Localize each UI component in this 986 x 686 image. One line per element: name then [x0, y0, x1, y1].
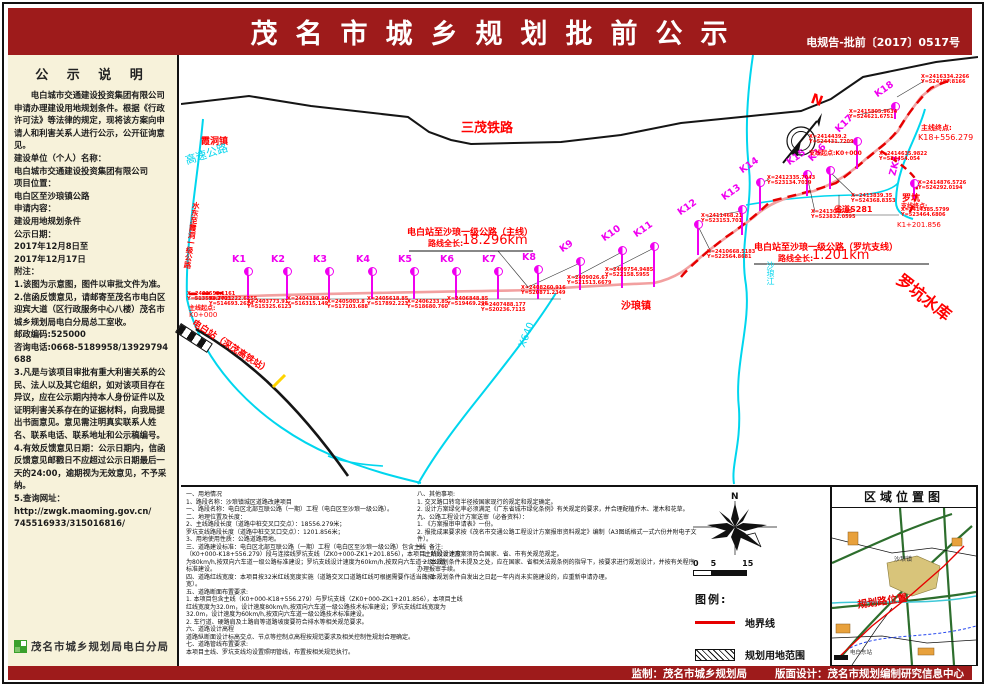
legend-item: 地界线	[695, 615, 775, 630]
agency-logo-icon	[14, 640, 27, 653]
coordinate-line: Y=524787.8166	[921, 80, 969, 85]
sidebar-paragraph: 2.信函反馈意见，请邮寄至茂名市电白区迎宾大道（区行政服务中心八楼）茂名市城乡规…	[14, 291, 172, 329]
agency-name: 茂名市城乡规划局电白分局	[31, 639, 169, 654]
sidebar-paragraph: 建设单位（个人）名称：	[14, 152, 172, 165]
km-marker-label: K7	[482, 254, 496, 265]
km-marker-label: K6	[440, 254, 454, 265]
km-marker-stem	[497, 275, 498, 299]
map-label: 水东至霞洞一级公路	[182, 201, 202, 269]
km-marker-dot	[368, 267, 377, 276]
coordinate-label: X=2416334.2266Y=524787.8166	[921, 75, 969, 86]
region-station-label: 电白东站	[850, 648, 873, 656]
map-label: 沙琅镇	[621, 297, 651, 312]
coordinate-label: X=2403773.91Y=515325.6123	[247, 300, 292, 311]
map-label: 省道S281	[834, 204, 872, 215]
page-title: 茂名市城乡规划批前公示	[235, 12, 746, 51]
map-label: K1+201.856	[897, 221, 941, 229]
sidebar-paragraph: 4.有效反馈意见日期：公示日期内，信函反馈意见邮戳日不应超过公示日期最后一天的2…	[14, 442, 172, 492]
km-marker-stem	[653, 250, 654, 287]
coordinate-label: X=2406233.85Y=518680.760	[407, 300, 448, 311]
sidebar-paragraph: 2017年12月8日至	[14, 240, 172, 253]
map-label: 1.201km	[812, 248, 869, 263]
map-label: N	[809, 91, 825, 110]
legend-panel: N 0515 图例: 地界线规划用地范围	[681, 487, 829, 664]
coordinate-line: Y=517103.688	[327, 305, 368, 310]
km-marker-dot	[576, 257, 585, 266]
map-label: K0+000	[189, 311, 217, 319]
sidebar-paragraph: 电白城市交通建设投资集团有限公司申请办理建设用地规划条件。根据《行政许可法》等法…	[14, 89, 172, 152]
note-line: 宽）。	[186, 581, 416, 589]
km-marker-dot	[756, 178, 765, 187]
km-marker-stem	[413, 275, 414, 299]
map-label: 18.296km	[462, 233, 528, 248]
map-label: 三茂铁路	[461, 117, 513, 136]
map-label: K18+556.279	[918, 133, 973, 142]
coordinate-line: Y=518680.760	[407, 305, 448, 310]
legend-label: 地界线	[745, 615, 775, 630]
header-banner: 茂名市城乡规划批前公示 电规告-批前〔2017〕0517号	[8, 8, 972, 55]
legend-item: 规划用地范围	[695, 647, 805, 662]
km-marker-label: K1	[232, 254, 246, 265]
km-marker-dot	[452, 267, 461, 276]
note-line: 32.0m，设计速度为60km/h,按双向六车道一级公路技术标准建设。	[186, 611, 416, 619]
coordinate-line: Y=523153.701	[701, 219, 742, 224]
wind-rose-icon: N	[689, 489, 781, 557]
sidebar-paragraph: 2017年12月17日	[14, 253, 172, 266]
sidebar-paragraph: 公示日期：	[14, 228, 172, 241]
map-label: 罗坑水库	[892, 267, 957, 325]
note-line: 2、主线路段长度（道路中桩交叉口交点）：18556.279米；	[186, 521, 416, 529]
sidebar-paragraph: 3.凡是与该项目审批有重大利害关系的公民、法人以及其它组织，如对该项目存在异议，…	[14, 366, 172, 442]
coordinate-line: Y=523464.6806	[901, 213, 949, 218]
map-label: 支线起点:K0+000	[809, 148, 862, 157]
note-line: 为80km/h,按双向六车道一级公路标准建设；罗坑支线设计速度为60km/h,按…	[186, 559, 416, 567]
coordinate-label: X=2411468.21Y=523153.701	[701, 214, 742, 225]
footer-banner: 监制：茂名市城乡规划局 版面设计：茂名市规划编制研究信息中心	[8, 666, 972, 680]
note-line: 四、道路红线宽度：本项目按32米红线宽度实施（道路交叉口道路红线可根据需要作适当…	[186, 574, 416, 582]
km-marker-label: K9	[558, 238, 576, 255]
footer-producer: 监制：茂名市城乡规划局	[632, 666, 748, 681]
map-label: 支线终点:	[901, 201, 927, 210]
note-line: 六、道路设计高程	[186, 626, 416, 634]
km-marker-label: K10	[600, 223, 623, 244]
sidebar-paragraph: 1.该图为示意图，图件以审批文件为准。	[14, 278, 172, 291]
km-marker-label: K3	[313, 254, 327, 265]
km-marker-stem	[759, 186, 760, 211]
legend-title: 图例:	[695, 591, 727, 607]
coordinate-line: Y=522564.8681	[707, 255, 755, 260]
map-label: 沙琅江	[765, 261, 776, 285]
coordinate-line: Y=523134.7039	[767, 181, 815, 186]
coordinate-line: Y=523832.0595	[811, 215, 856, 220]
coordinate-label: X=2415805.9634Y=524621.6751	[849, 110, 897, 121]
km-marker-label: K11	[632, 219, 655, 240]
region-town-label: 沙琅镇	[894, 555, 912, 563]
km-marker-dot	[826, 166, 835, 175]
note-line: 标准建设。	[186, 566, 416, 574]
sidebar-paragraph: 电白城市交通建设投资集团有限公司	[14, 165, 172, 178]
km-marker-dot	[494, 267, 503, 276]
km-marker-stem	[697, 228, 698, 255]
coordinate-label: X=2407488.177Y=520236.7115	[481, 303, 526, 314]
coordinate-line: Y=520871.2349	[521, 291, 566, 296]
km-marker-dot	[244, 267, 253, 276]
region-map-panel: 区域位置图	[830, 485, 978, 666]
km-marker-label: K4	[356, 254, 370, 265]
sidebar-paragraph: 申请内容：	[14, 202, 172, 215]
coordinate-line: Y=524621.6751	[849, 115, 897, 120]
km-marker-dot	[650, 242, 659, 251]
note-line: 罗坑支线路段长度（道路中桩交叉口交点）：1201.856米；	[186, 529, 416, 537]
sidebar-footer: 茂名市城乡规划局电白分局	[14, 639, 169, 654]
note-line: 七、道路管线布置要求:	[186, 641, 416, 649]
note-line: 二、地理位置及长度：	[186, 514, 416, 522]
coordinate-line: Y=524454.054	[879, 157, 927, 162]
km-marker-dot	[618, 246, 627, 255]
scale-tick: 0	[693, 559, 699, 568]
svg-text:N: N	[731, 492, 739, 502]
map-label: 路线全长:	[428, 238, 463, 249]
coordinate-label: X=2404388.90Y=516315.149	[287, 297, 328, 308]
km-marker-label: K2	[271, 254, 285, 265]
sidebar-paragraph: 5.查询网址：	[14, 492, 172, 505]
coordinate-label: X=2410668.5183Y=522564.8681	[707, 250, 755, 261]
plan-map: K1K2K3K4K5K6K7K8K9K10K11K12K13K14K15K16K…	[181, 55, 978, 485]
note-line: 1. 本项目包含主线（K0+000-K18+556.279）与罗坑支线（ZK0+…	[186, 596, 416, 604]
map-overlay: K1K2K3K4K5K6K7K8K9K10K11K12K13K14K15K16K…	[181, 55, 978, 485]
planning-area-swatch	[695, 649, 735, 661]
map-label: 路线全长:	[778, 253, 813, 264]
scale-tick: 5	[711, 559, 717, 568]
km-marker-dot	[325, 267, 334, 276]
note-line: 3、用地使用性质：公路道路用地。	[186, 536, 416, 544]
note-line: 2. 车行道、硬路肩及土路肩等道路坡度要符合排水等相关规范要求。	[186, 619, 416, 627]
km-marker-dot	[534, 265, 543, 274]
km-marker-label: K13	[720, 182, 743, 203]
km-marker-label: K12	[676, 197, 699, 218]
map-label: 主线终点:	[921, 123, 952, 133]
coordinate-line: Y=521513.6679	[567, 281, 612, 286]
sidebar-paragraph: 745516933/315016816/	[14, 517, 172, 530]
coordinate-line: Y=517892.223	[367, 302, 408, 307]
scale-tick: 15	[742, 559, 753, 568]
sidebar-paragraph: http://zwgk.maoming.gov.cn/	[14, 505, 172, 518]
coordinate-line: Y=516315.149	[287, 302, 328, 307]
sidebar-paragraph: 电白区至沙琅镇公路	[14, 190, 172, 203]
note-line: 红线宽度为32.0m，设计速度80km/h,按双向六车道一级公路技术标准建设；罗…	[186, 604, 416, 612]
coordinate-line: Y=515325.6123	[247, 305, 292, 310]
legend-label: 规划用地范围	[745, 647, 805, 662]
region-station-icon	[834, 655, 848, 660]
km-marker-stem	[328, 275, 329, 299]
coordinate-label: X=2408260.916Y=520871.2349	[521, 286, 566, 297]
coordinate-label: X=2405618.85Y=517892.223	[367, 297, 408, 308]
coordinate-label: X=2412335.7043Y=523134.7039	[767, 176, 815, 187]
coordinate-line: Y=522158.5955	[605, 273, 653, 278]
sidebar-title: 公 示 说 明	[8, 64, 177, 83]
sidebar-paragraph: 建设用地规划条件	[14, 215, 172, 228]
note-line: 1、路段名称：沙琅镇城区道路改建项目	[186, 499, 416, 507]
km-marker-label: K5	[398, 254, 412, 265]
sidebar-paragraph: 项目位置：	[14, 177, 172, 190]
sidebar-paragraph: 咨询电话:0668-5189958/13929794688	[14, 341, 172, 366]
km-marker-dot	[283, 267, 292, 276]
km-marker-label: K8	[522, 252, 536, 263]
sidebar-body: 电白城市交通建设投资集团有限公司申请办理建设用地规划条件。根据《行政许可法》等法…	[8, 83, 177, 530]
footer-designer: 版面设计：茂名市规划编制研究信息中心	[775, 666, 964, 681]
note-line: 道路纵断面设计标高交点、节点等控制点高程按规范要求及相关控制性规划合理确定。	[186, 634, 416, 642]
notes-left-column: 一、用地情况1、路段名称：沙琅镇城区道路改建项目一、路段名称：电白区北部互联公路…	[186, 491, 416, 656]
region-map-title: 区域位置图	[832, 487, 976, 508]
km-marker-label: K15	[785, 147, 808, 168]
sidebar-paragraph: 邮政编码:525000	[14, 328, 172, 341]
note-line: 五、道路断面布置要求:	[186, 589, 416, 597]
coordinate-label: X=2414876.5726Y=524292.0194	[918, 181, 966, 192]
scale-bar-graphic	[693, 570, 747, 576]
note-line: （K0+000-K18+556.279）段与连接线罗坑支线（ZK0+000-ZK…	[186, 551, 416, 559]
region-map-canvas: 沙琅镇 电白东站 规划路位置	[832, 508, 976, 665]
boundary-line-swatch	[695, 621, 735, 624]
notice-sidebar: 公 示 说 明 电白城市交通建设投资集团有限公司申请办理建设用地规划条件。根据《…	[8, 55, 179, 666]
note-line: 本项目主线、罗坑支线均设置照明管线，布置按相关规范执行。	[186, 649, 416, 657]
coordinate-line: Y=520236.7115	[481, 308, 526, 313]
coordinate-label: X=2414635.9822Y=524454.054	[879, 152, 927, 163]
scale-bar: 0515	[693, 559, 783, 576]
map-label: X640	[517, 321, 537, 349]
km-marker-label: K14	[738, 155, 761, 176]
coordinate-line: Y=524431.7209	[809, 140, 854, 145]
km-marker-label: K18	[873, 79, 896, 100]
scale-ticks: 0515	[693, 559, 783, 568]
note-line: 三、道路建设标准：电白区北部互联公路（一期）工程（电白区至沙琅一级公路）包含主线	[186, 544, 416, 552]
sidebar-paragraph: 附注：	[14, 265, 172, 278]
note-line: 一、用地情况	[186, 491, 416, 499]
note-line: 一、路段名称：电白区北部互联公路（一期）工程（电白区至沙琅一级公路）。	[186, 506, 416, 514]
coordinate-label: X=2409754.9485Y=522158.5955	[605, 268, 653, 279]
km-marker-stem	[829, 174, 830, 189]
coordinate-label: X=2414439.2Y=524431.7209	[809, 135, 854, 146]
coordinate-label: X=2405003.8Y=517103.688	[327, 300, 368, 311]
doc-number: 电规告-批前〔2017〕0517号	[806, 34, 960, 50]
km-marker-dot	[410, 267, 419, 276]
planning-notice-poster: 茂名市城乡规划批前公示 电规告-批前〔2017〕0517号 公 示 说 明 电白…	[0, 0, 986, 686]
coordinate-line: Y=524292.0194	[918, 186, 966, 191]
